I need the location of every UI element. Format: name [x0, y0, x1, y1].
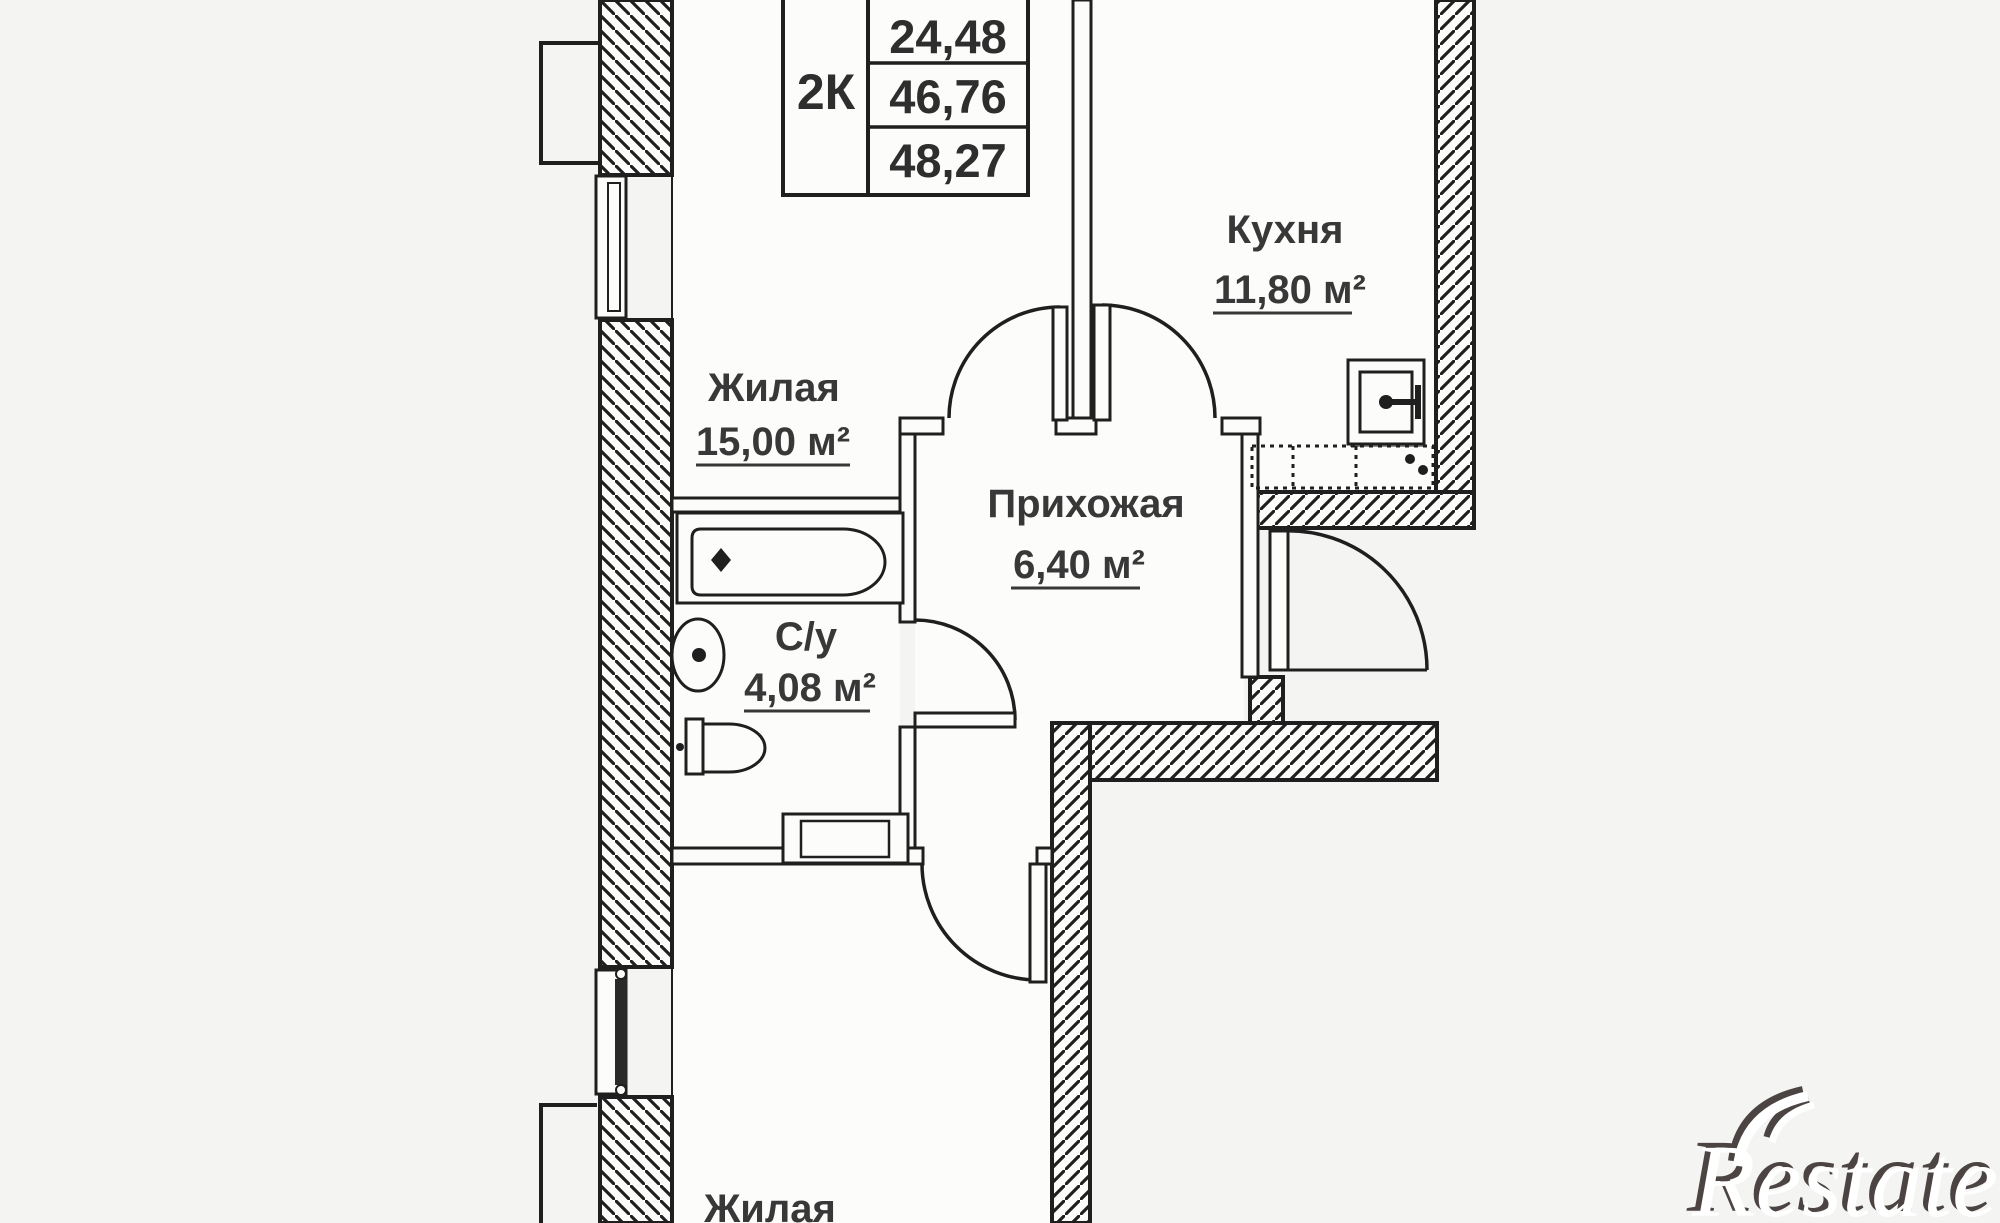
door-leaf-living-bottom	[1030, 864, 1046, 982]
apartment-type-label: 2К	[797, 64, 856, 120]
wall-kitchen-bottom	[1250, 492, 1474, 528]
wall-bottom-horizontal	[1052, 723, 1437, 780]
wall-left-middle	[600, 320, 672, 967]
door-leaf-living-top	[1053, 307, 1067, 420]
wall-partition-kitchen-living	[1073, 0, 1091, 434]
wall-entry-stub	[1250, 677, 1283, 723]
watermark-text: Restate	[1691, 1124, 1998, 1223]
floor-plan-drawing: 2К 24,48 46,76 48,27 Кухня 11,80 м² Жила…	[0, 0, 2000, 1223]
toilet-bowl	[703, 724, 765, 772]
area-value-total: 48,27	[889, 134, 1007, 187]
toilet-tank	[686, 719, 703, 774]
area-value-apartment: 46,76	[889, 70, 1007, 123]
room-corridor	[915, 723, 1052, 864]
wall-hall-top-left	[900, 418, 943, 434]
window-bottom-sash	[615, 979, 627, 1085]
door-leaf-bathroom	[915, 713, 1015, 727]
door-leaf-kitchen	[1094, 305, 1110, 420]
wall-left-bottom	[600, 1097, 672, 1223]
wall-right	[1436, 0, 1474, 494]
window-top-sash	[608, 183, 620, 311]
bathroom-sink-drain-icon	[692, 648, 706, 662]
room-area-bathroom: 4,08 м²	[744, 666, 876, 710]
room-label-hallway: Прихожая	[987, 482, 1184, 526]
kitchen-socket-dot-2	[1418, 465, 1428, 475]
room-area-living-top: 15,00 м²	[696, 420, 850, 464]
wall-hall-top-right	[1222, 418, 1260, 434]
area-value-living: 24,48	[889, 10, 1007, 63]
wall-bottom-column	[1052, 723, 1090, 1223]
area-table: 2К 24,48 46,76 48,27	[783, 0, 1028, 195]
floor-plan-screenshot: 2К 24,48 46,76 48,27 Кухня 11,80 м² Жила…	[0, 0, 2000, 1223]
window-bottom-knob-bottom	[616, 1085, 626, 1095]
room-living-bottom	[672, 864, 1052, 1223]
toilet-valve-dot	[676, 743, 684, 751]
wall-hall-right	[1242, 434, 1258, 677]
room-label-kitchen: Кухня	[1227, 208, 1344, 252]
room-area-hallway: 6,40 м²	[1013, 543, 1145, 587]
kitchen-socket-dot-1	[1405, 454, 1415, 464]
room-area-kitchen: 11,80 м²	[1214, 268, 1366, 312]
room-label-bathroom: С/у	[775, 615, 838, 659]
door-leaf-entrance	[1270, 531, 1288, 670]
wall-corridor-stub	[1037, 848, 1052, 864]
room-label-living-top: Жилая	[707, 366, 840, 410]
window-bottom-knob-top	[616, 969, 626, 979]
wall-bath-top	[672, 498, 905, 512]
wall-left-top	[600, 0, 672, 175]
room-label-living-bottom: Жилая	[703, 1187, 836, 1223]
